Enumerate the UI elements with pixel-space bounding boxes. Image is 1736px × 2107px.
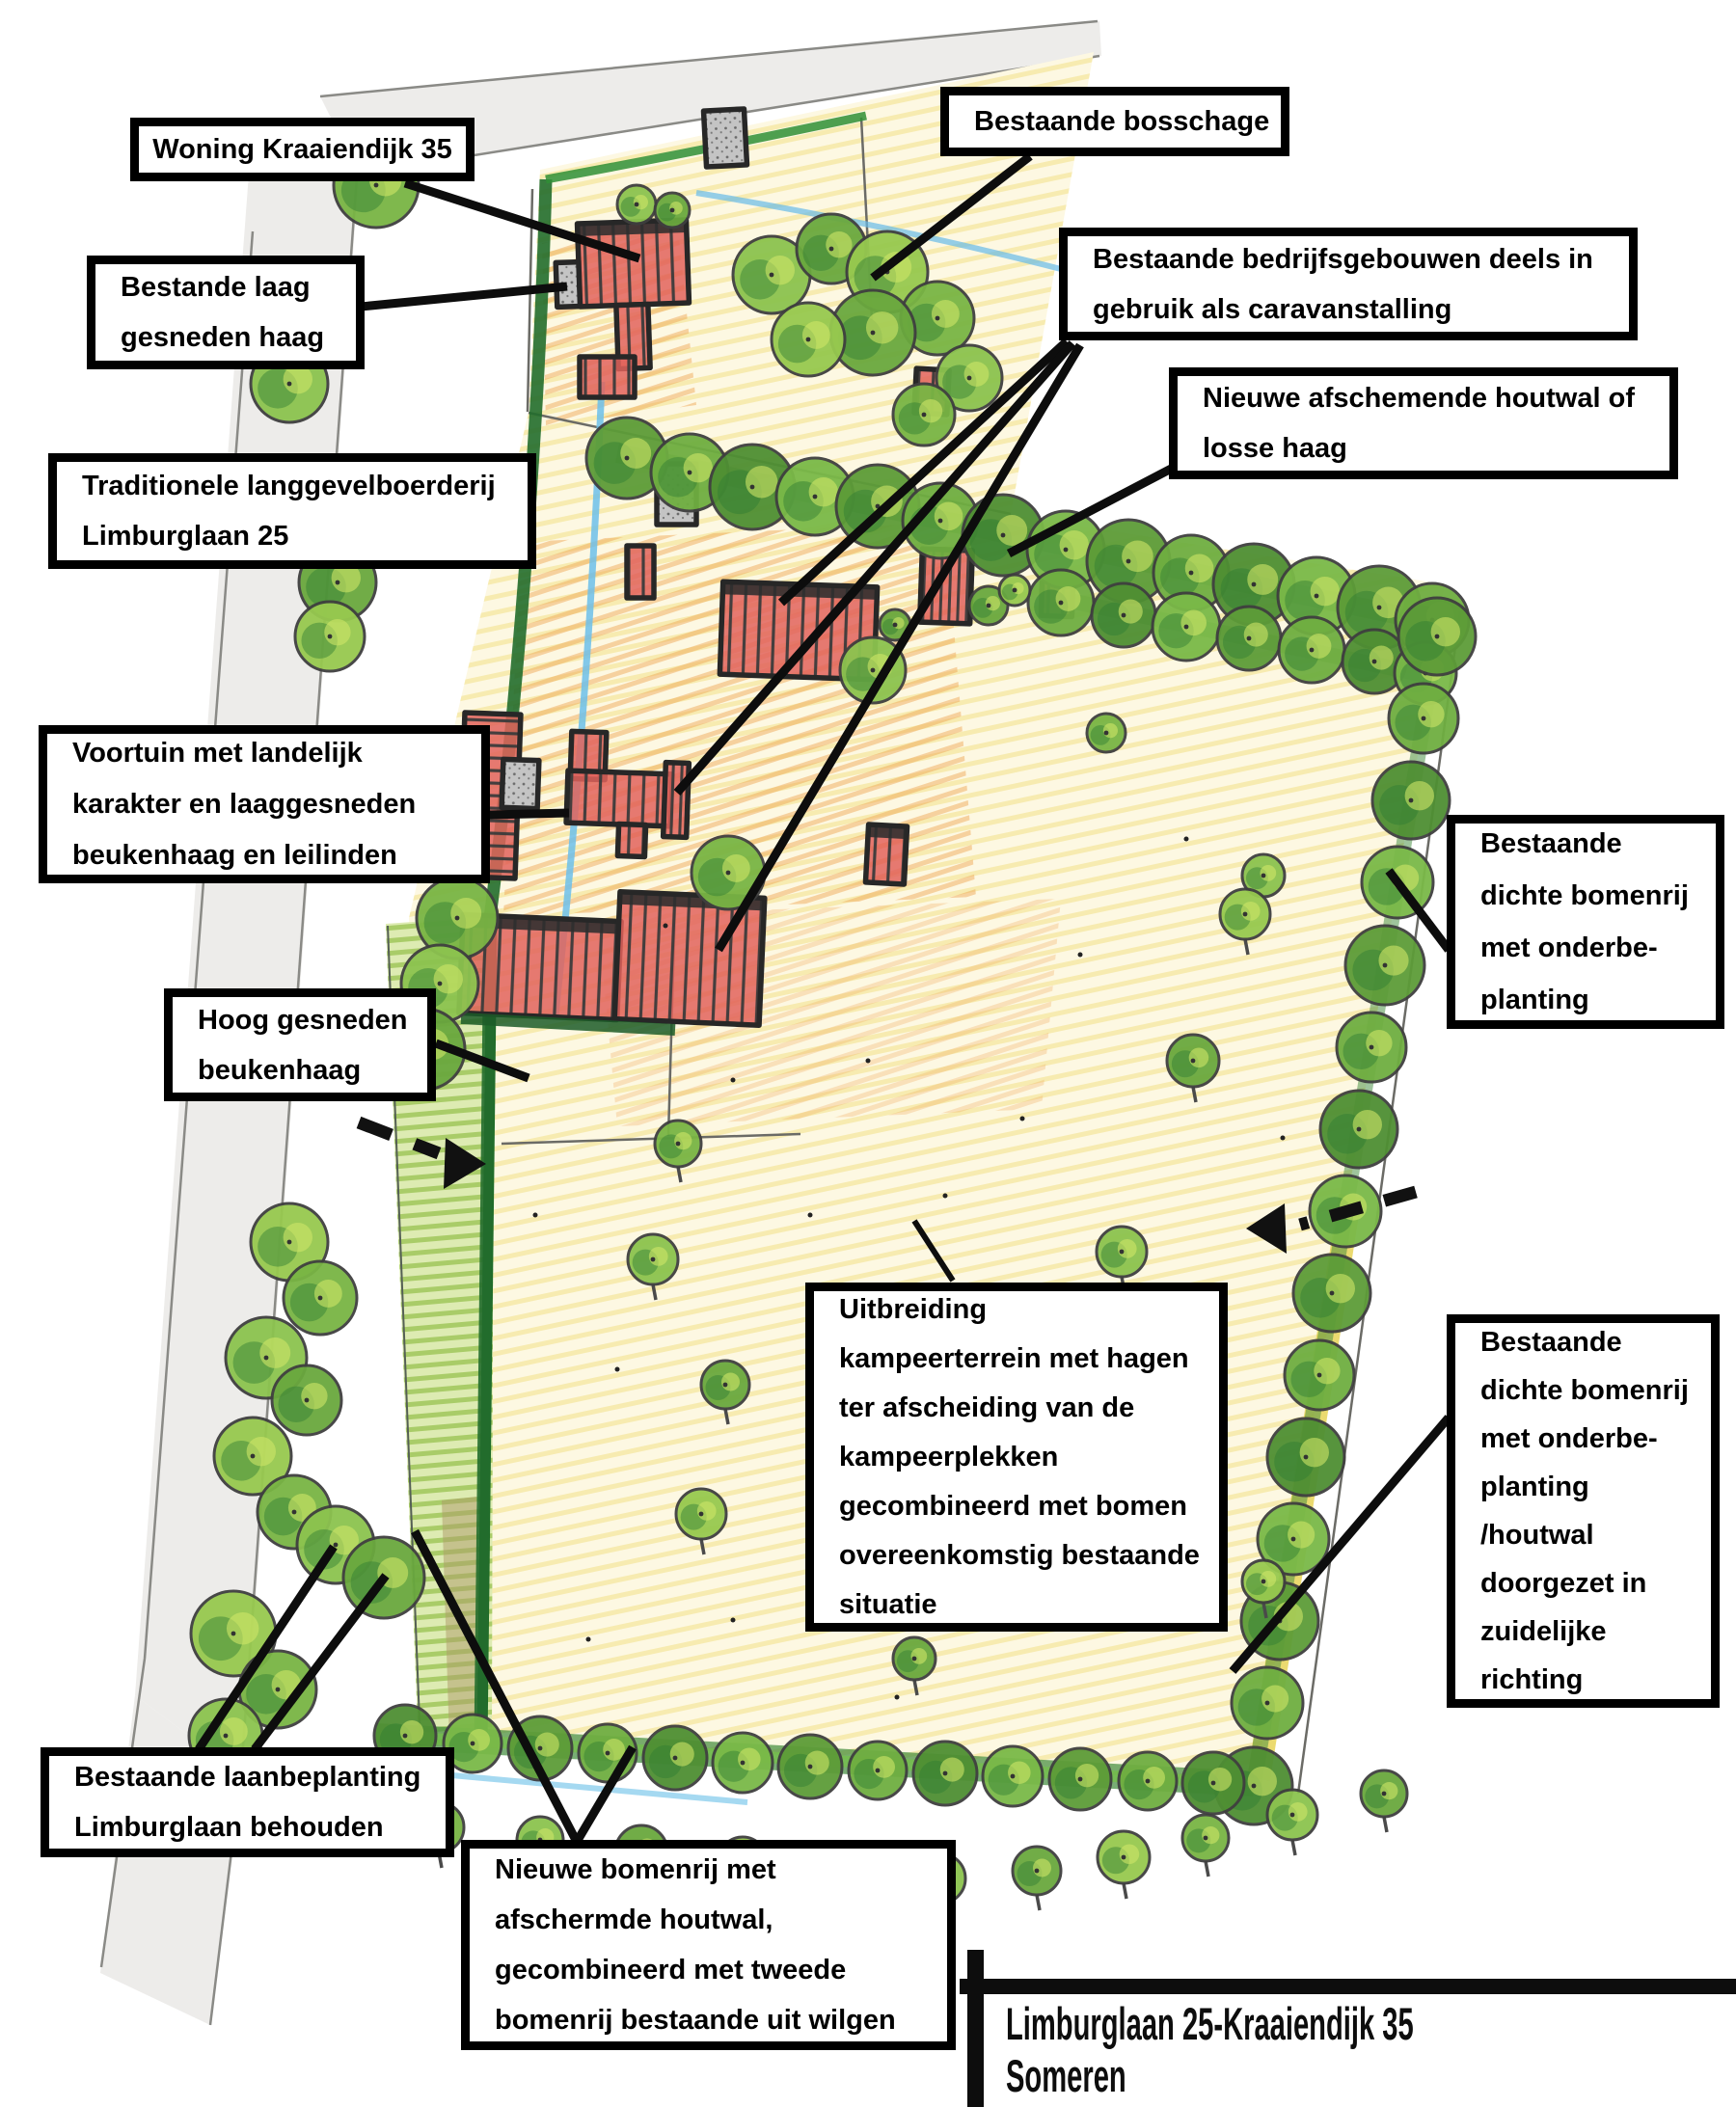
annotation-line: Bestaande bedrijfsgebouwen deels in: [1093, 234, 1625, 284]
annotation-line: zuidelijke: [1480, 1607, 1707, 1656]
annotation-line: gebruik als caravanstalling: [1093, 284, 1625, 335]
annotation-line: doorgezet in: [1480, 1559, 1707, 1607]
middle-annex: [664, 763, 690, 838]
tree: [655, 193, 690, 228]
tree: [643, 1726, 707, 1790]
annotation-nieuwe-houtwal: Nieuwe afschemende houtwal oflosse haag: [1169, 367, 1678, 479]
tree: [1293, 1255, 1370, 1332]
tree: [713, 1733, 773, 1793]
annotation-line: Bestande laag: [121, 262, 352, 312]
annotation-line: beukenhaag en leilinden: [72, 830, 477, 881]
plan-title: Limburglaan 25-Kraaiendijk 35 Someren: [1006, 1998, 1414, 2102]
annotation-woning-kraaiendijk-35: Woning Kraaiendijk 35: [130, 118, 475, 181]
tree: [778, 1735, 842, 1798]
annotation-bestaande-bedrijfsgebouwen: Bestaande bedrijfsgebouwen deels ingebru…: [1059, 228, 1638, 340]
annotation-line: planting: [1480, 1463, 1707, 1511]
annotation-line: Nieuwe afschemende houtwal of: [1203, 373, 1666, 423]
annotation-line: planting: [1480, 974, 1712, 1026]
small-building-east: [865, 824, 907, 884]
tree: [999, 575, 1030, 606]
annotation-line: kampeerterrein met hagen: [839, 1335, 1215, 1384]
tree: [1389, 684, 1458, 753]
tree: [1320, 1091, 1397, 1168]
annotation-line: Voortuin met landelijk: [72, 728, 477, 779]
tree: [1182, 1815, 1229, 1877]
landscape-plan-page: Woning Kraaiendijk 35Bestande laaggesned…: [0, 0, 1736, 2107]
tree: [893, 384, 955, 446]
title-divider-vertical: [967, 1950, 984, 2107]
annotation-line: /houtwal: [1480, 1511, 1707, 1559]
title-line-1: Limburglaan 25-Kraaiendijk 35: [1006, 1998, 1414, 2050]
tree: [1372, 762, 1450, 839]
tree: [1361, 1770, 1407, 1832]
tree: [1217, 607, 1281, 670]
annotation-line: ter afscheiding van de: [839, 1384, 1215, 1433]
annotation-line: Woning Kraaiendijk 35: [152, 124, 451, 175]
annotation-line: overeenkomstig bestaande: [839, 1531, 1215, 1580]
small-shed: [627, 546, 654, 598]
annotation-uitbreiding-kampeerterrein: Uitbreidingkampeerterrein met hagenter a…: [805, 1283, 1228, 1632]
annotation-hoog-gesneden-beukenhaag: Hoog gesnedenbeukenhaag: [164, 988, 436, 1101]
tree: [1087, 714, 1126, 752]
annotation-line: beukenhaag: [198, 1045, 423, 1095]
tree: [284, 1261, 357, 1335]
annotation-line: karakter en laaggesneden: [72, 779, 477, 830]
tree: [1345, 926, 1424, 1005]
annotation-line: gecombineerd met tweede: [495, 1945, 943, 1995]
annotation-line: Bestaande laanbeplanting: [74, 1752, 442, 1802]
annotation-bomenrij-noord: Bestaandedichte bomenrijmet onderbe-plan…: [1447, 815, 1724, 1029]
annotation-line: bomenrij bestaande uit wilgen: [495, 1995, 943, 2045]
annotation-line: Limburglaan behouden: [74, 1802, 442, 1852]
annotation-line: Uitbreiding: [839, 1285, 1215, 1335]
tree: [272, 1365, 341, 1435]
annotation-line: Bestaande bosschage: [974, 96, 1277, 147]
annotation-line: met onderbe-: [1480, 922, 1712, 974]
building-woning-kraaiendijk-35: [578, 220, 690, 307]
middle-tail: [617, 824, 645, 857]
annotation-line: richting: [1480, 1656, 1707, 1704]
annotation-voortuin: Voortuin met landelijkkarakter en laagge…: [39, 725, 490, 883]
tree: [1119, 1752, 1177, 1810]
tree: [1279, 617, 1344, 683]
annotation-line: gecombineerd met bomen: [839, 1482, 1215, 1531]
tree: [1285, 1340, 1354, 1410]
tree: [1232, 1667, 1303, 1739]
annotation-line: dichte bomenrij: [1480, 1366, 1707, 1415]
annotation-line: losse haag: [1203, 423, 1666, 473]
boerderij-courtyard: [502, 759, 539, 808]
tree: [1398, 598, 1476, 675]
tree: [1098, 1831, 1150, 1899]
annotation-line: afschermde houtwal,: [495, 1895, 943, 1945]
tree: [295, 602, 365, 671]
annotation-line: Bestaande: [1480, 818, 1712, 870]
annotation-line: situatie: [839, 1580, 1215, 1630]
tree: [913, 1742, 977, 1805]
building-caravanstalling-2: [566, 770, 672, 826]
annotation-line: dichte bomenrij: [1480, 870, 1712, 922]
title-divider-horizontal: [960, 1979, 1736, 1994]
tree: [1013, 1847, 1061, 1910]
annotation-line: Nieuwe bomenrij met: [495, 1845, 943, 1895]
annotation-bestaande-bosschage: Bestaande bosschage: [940, 87, 1289, 156]
tree: [1182, 1752, 1244, 1814]
annotation-line: kampeerplekken: [839, 1433, 1215, 1482]
tree: [983, 1746, 1043, 1806]
annotation-line: Bestaande: [1480, 1318, 1707, 1366]
tree: [617, 185, 656, 224]
tree: [1267, 1418, 1344, 1496]
annotation-line: Hoog gesneden: [198, 995, 423, 1045]
title-line-2: Someren: [1006, 2050, 1414, 2102]
annotation-laanbeplanting: Bestaande laanbeplantingLimburglaan beho…: [41, 1747, 454, 1857]
annotation-line: gesneden haag: [121, 312, 352, 363]
annotation-nieuwe-bomenrij: Nieuwe bomenrij metafschermde houtwal,ge…: [461, 1840, 956, 2050]
tree: [1153, 593, 1220, 661]
annotation-line: Limburglaan 25: [82, 511, 524, 561]
tree: [849, 1742, 907, 1799]
tree: [1092, 583, 1155, 647]
tree: [772, 303, 845, 376]
annotation-line: met onderbe-: [1480, 1415, 1707, 1463]
tree: [1049, 1748, 1111, 1810]
annotation-line: Traditionele langgevelboerderij: [82, 461, 524, 511]
annotation-langgevelboerderij: Traditionele langgevelboerderijLimburgla…: [48, 453, 536, 569]
tree: [1028, 570, 1094, 635]
caravanstalling-annex: [920, 549, 973, 624]
tree: [1337, 1013, 1406, 1082]
annotation-bestande-laag-gesneden-haag: Bestande laaggesneden haag: [87, 256, 365, 369]
gray-outbuilding-north: [704, 109, 747, 167]
shed: [580, 357, 635, 397]
annotation-bomenrij-zuid: Bestaandedichte bomenrijmet onderbe-plan…: [1447, 1314, 1720, 1708]
tree: [1267, 1790, 1317, 1855]
